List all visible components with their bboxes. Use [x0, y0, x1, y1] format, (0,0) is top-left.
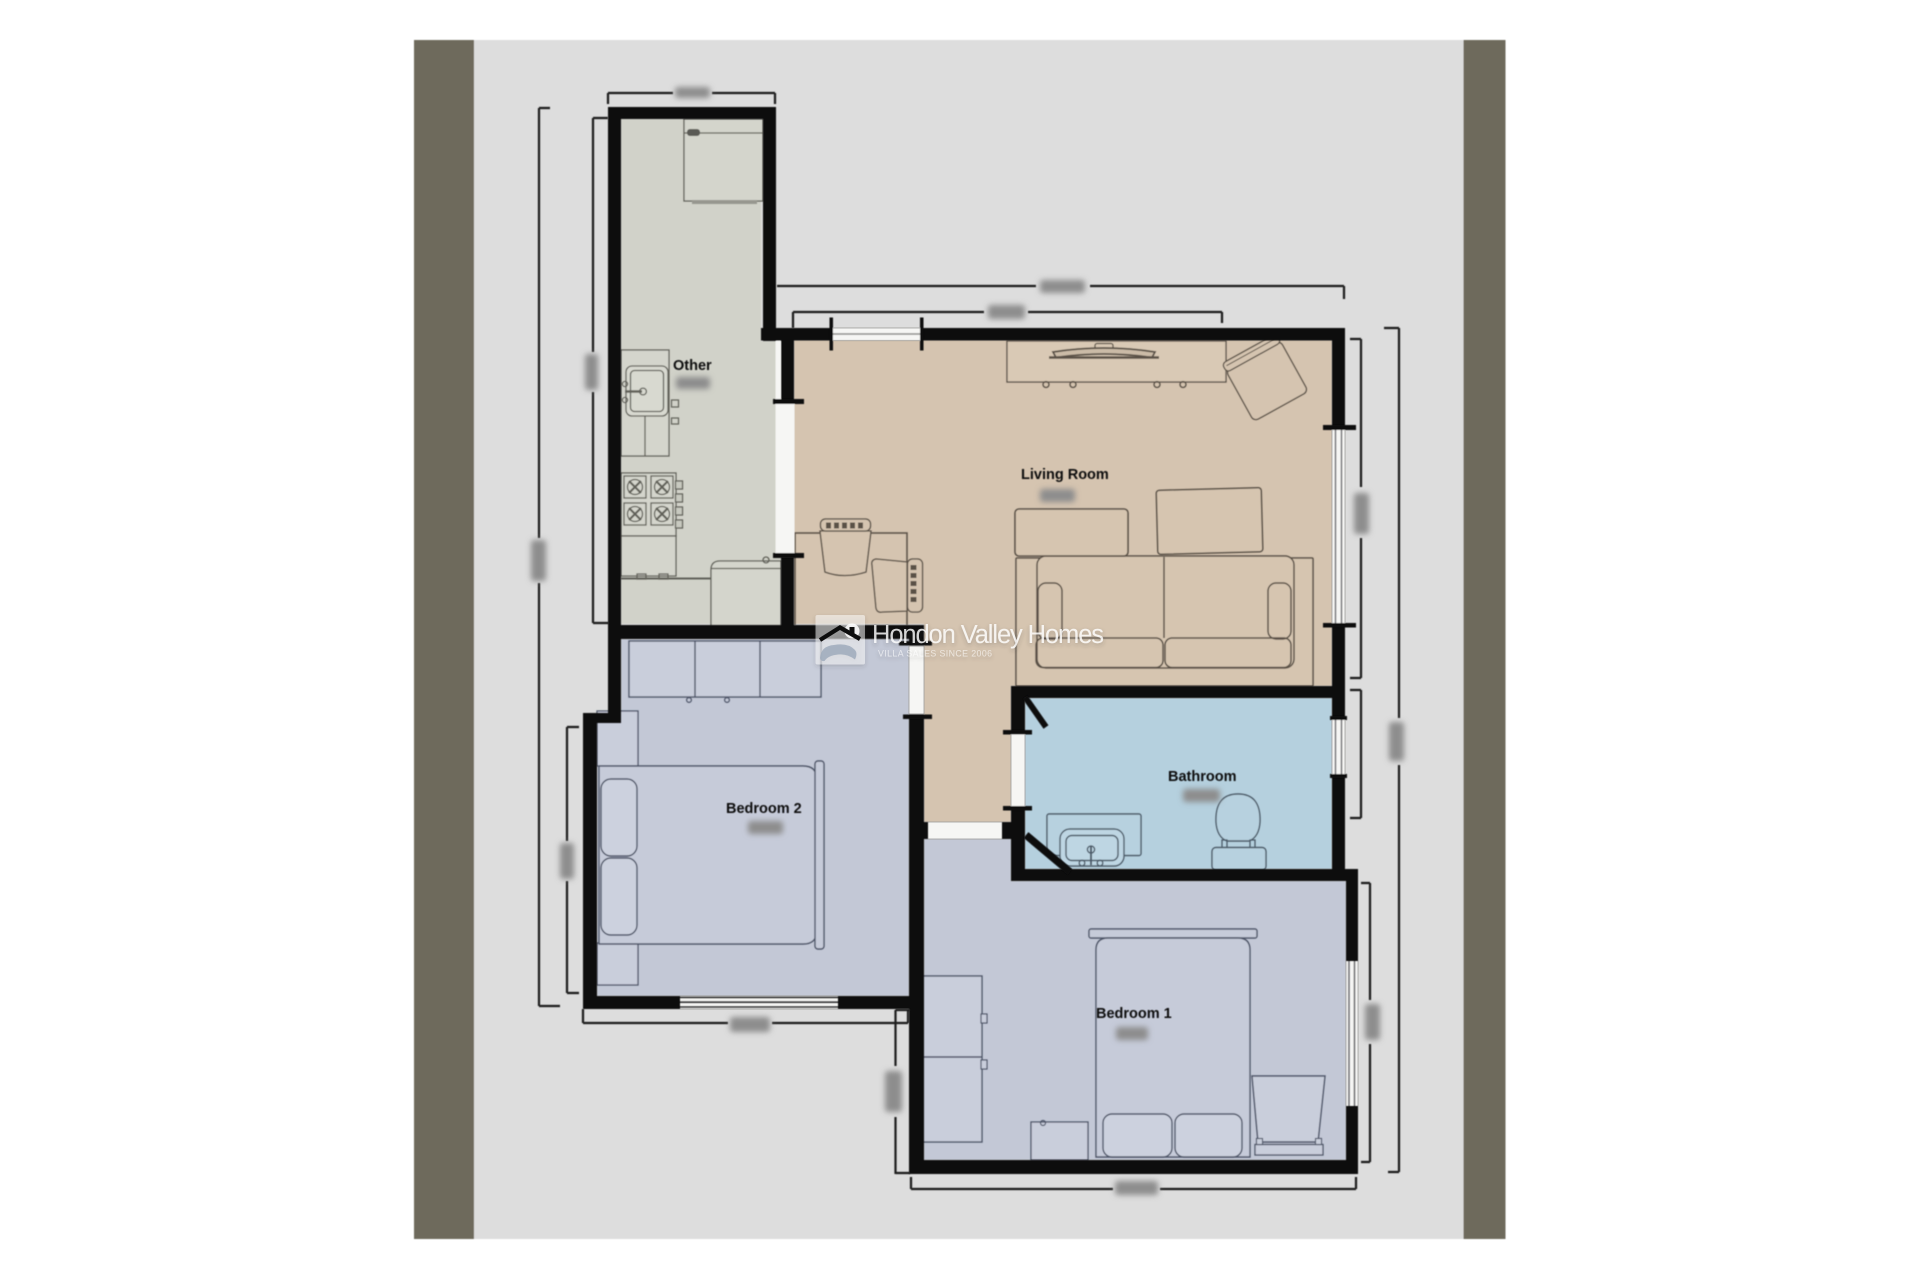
- svg-text:Bathroom: Bathroom: [1168, 769, 1236, 785]
- svg-text:Hondon Valley Homes: Hondon Valley Homes: [872, 621, 1103, 649]
- svg-text:Other: Other: [673, 358, 712, 374]
- svg-text:Bedroom 1: Bedroom 1: [1096, 1006, 1172, 1022]
- svg-text:Living Room: Living Room: [1021, 467, 1109, 483]
- svg-text:VILLA SALES SINCE 2006: VILLA SALES SINCE 2006: [878, 649, 992, 659]
- svg-text:Bedroom 2: Bedroom 2: [726, 801, 802, 817]
